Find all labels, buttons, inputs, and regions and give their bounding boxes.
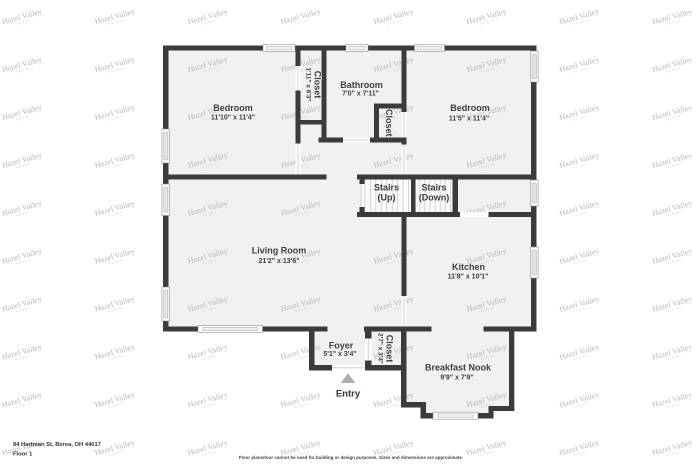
svg-text:Floor 1: Floor 1	[13, 452, 33, 458]
svg-text:2'7" x 3'4": 2'7" x 3'4"	[376, 333, 383, 364]
svg-text:Bathroom: Bathroom	[340, 80, 383, 90]
svg-text:21'2" x 13'6": 21'2" x 13'6"	[258, 258, 299, 265]
svg-text:Stairs: Stairs	[421, 183, 446, 193]
svg-text:Closet: Closet	[312, 71, 322, 99]
svg-text:Foyer: Foyer	[329, 340, 354, 350]
svg-text:Bedroom: Bedroom	[213, 103, 253, 113]
svg-text:Bedroom: Bedroom	[450, 103, 490, 113]
svg-text:7'0" x 7'11": 7'0" x 7'11"	[342, 91, 379, 98]
svg-text:Closet: Closet	[384, 109, 394, 137]
svg-text:9'9" x 7'9": 9'9" x 7'9"	[440, 375, 473, 382]
svg-text:11'8" x 10'1": 11'8" x 10'1"	[448, 274, 489, 281]
svg-text:Entry: Entry	[336, 388, 361, 399]
svg-text:Closet: Closet	[384, 335, 394, 363]
svg-text:(Up): (Up)	[378, 193, 396, 203]
svg-text:11'10" x 11'4": 11'10" x 11'4"	[211, 115, 255, 122]
svg-text:Living Room: Living Room	[252, 246, 307, 256]
svg-text:Breakfast Nook: Breakfast Nook	[425, 363, 492, 373]
svg-text:Stairs: Stairs	[374, 183, 399, 193]
svg-text:Floor plans/tour cannot be use: Floor plans/tour cannot be used for buil…	[239, 455, 463, 460]
svg-text:(Down): (Down)	[419, 193, 450, 203]
svg-text:Kitchen: Kitchen	[452, 262, 485, 272]
svg-text:11'5" x 11'4": 11'5" x 11'4"	[449, 115, 489, 122]
svg-text:84 Hartman St, Berea, OH 44017: 84 Hartman St, Berea, OH 44017	[13, 442, 101, 448]
svg-text:1'11" x 6'3": 1'11" x 6'3"	[304, 67, 311, 101]
svg-text:5'1" x 3'4": 5'1" x 3'4"	[323, 351, 356, 358]
